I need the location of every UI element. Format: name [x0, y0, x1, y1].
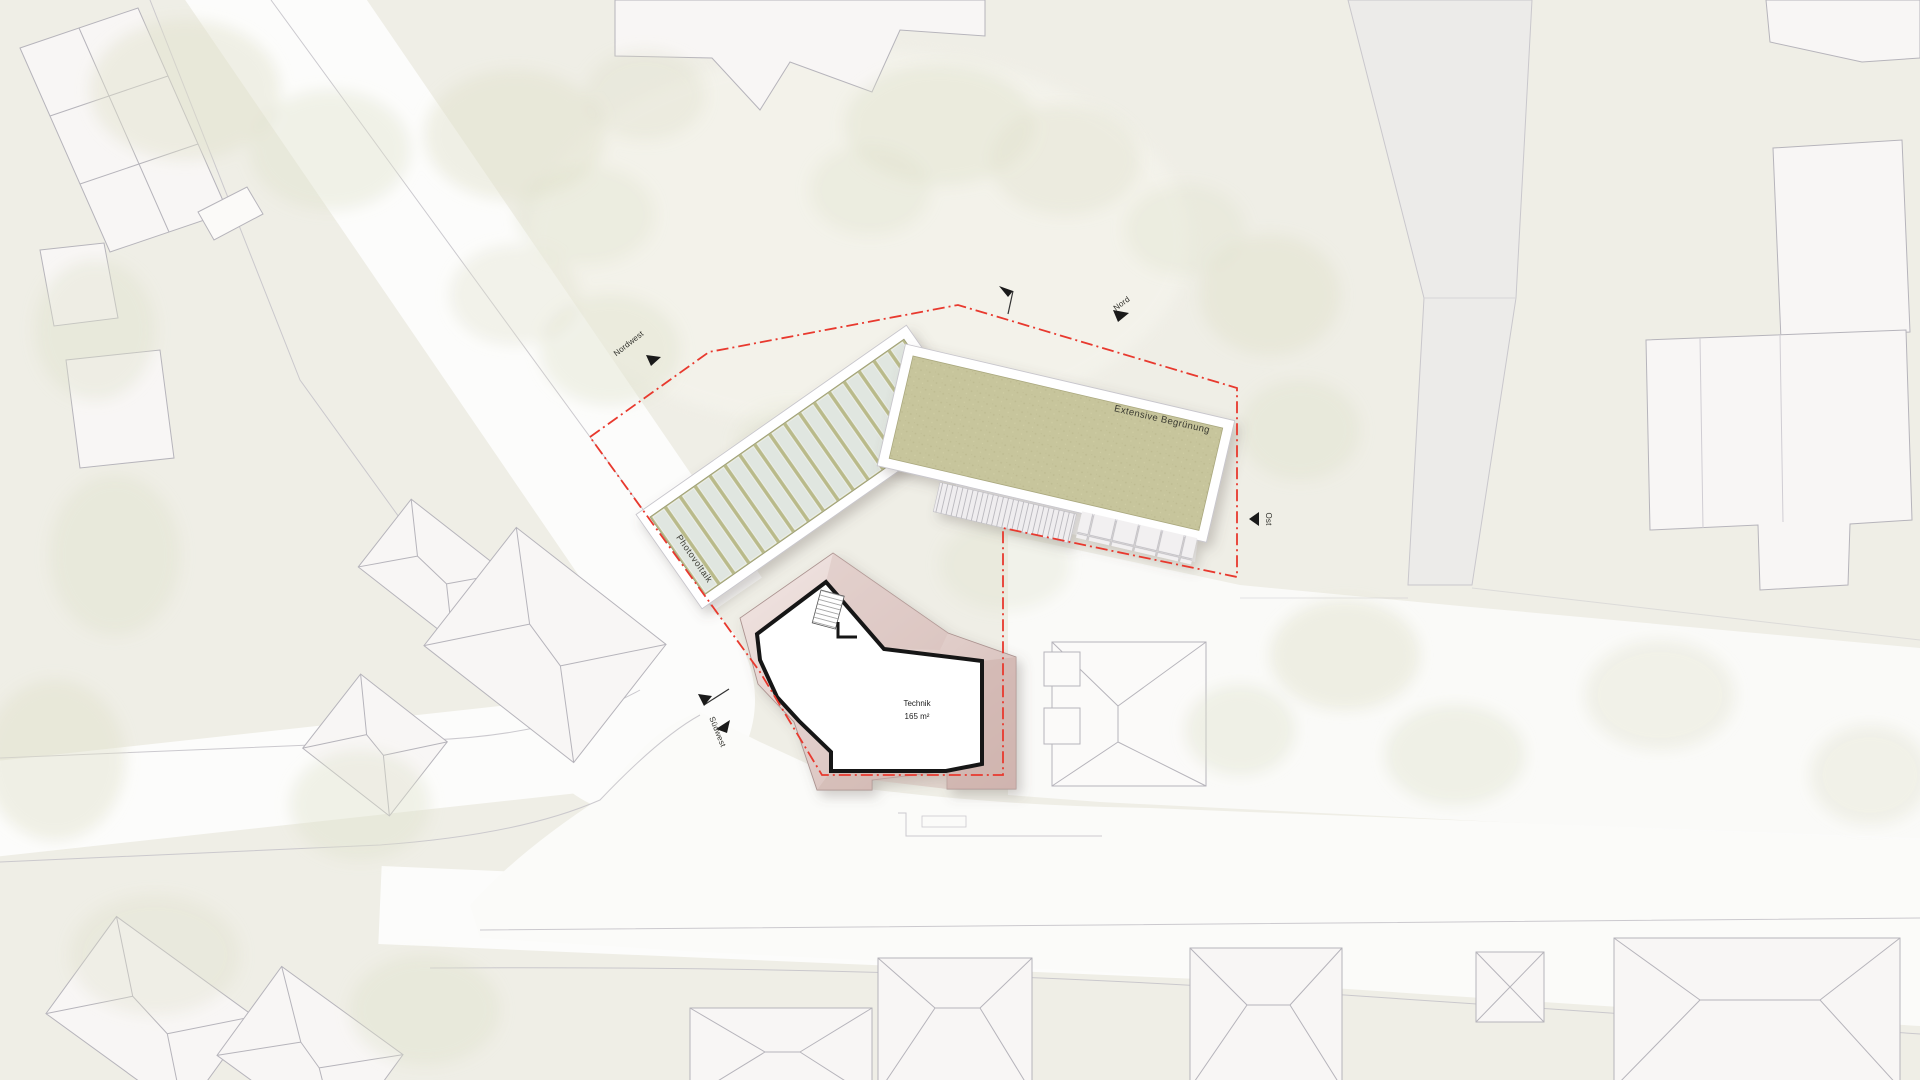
building-east-1 — [1773, 140, 1910, 340]
house-south-1 — [690, 1008, 872, 1080]
house-south-5 — [1614, 938, 1900, 1080]
label-ost: Ost — [1264, 512, 1272, 525]
site-plan-canvas: Nordwest Nord Ost Südwest Photovoltaik E… — [0, 0, 1920, 1080]
label-technik-area: 165 m² — [905, 713, 930, 721]
house-south-2 — [878, 958, 1032, 1080]
house-south-3 — [1190, 948, 1342, 1080]
house-south-4 — [1476, 952, 1544, 1022]
house-neighbour-east — [1044, 642, 1206, 786]
label-technik-name: Technik — [903, 700, 930, 708]
site-plan-drawing — [0, 0, 1920, 1080]
